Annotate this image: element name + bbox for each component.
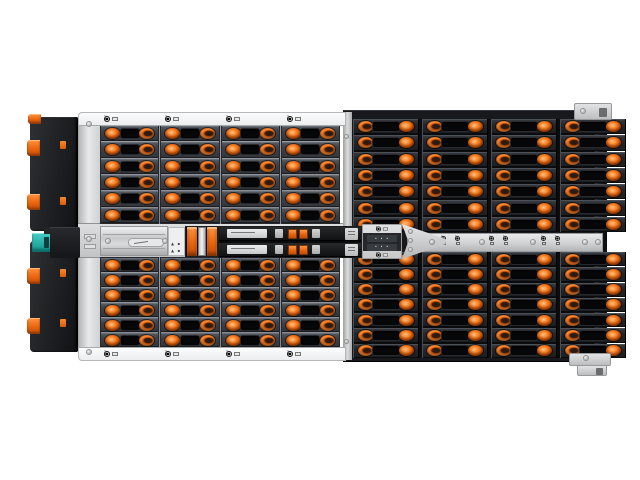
drive-bay	[161, 159, 218, 174]
drive-latch-crescent-icon	[139, 305, 154, 316]
drive-latch-oval-icon	[606, 137, 621, 148]
bracket-slot	[596, 368, 603, 375]
drive-bay	[101, 303, 158, 317]
drive-latch-crescent-icon	[358, 299, 373, 310]
drive-bay	[101, 159, 158, 174]
drive-slot-vent	[442, 122, 468, 131]
drive-bay	[423, 119, 487, 134]
drive-slot-vent	[511, 171, 537, 180]
drive-bay	[282, 208, 339, 223]
drive-bay	[222, 333, 279, 347]
cma-slide-rail	[100, 226, 168, 256]
drive-latch-crescent-icon	[565, 121, 580, 132]
drive-slot-vent	[121, 194, 139, 203]
info-letter-icon: i	[376, 252, 378, 258]
drive-bay	[354, 283, 418, 297]
drive-latch-crescent-icon	[200, 275, 215, 286]
drive-latch-crescent-icon	[260, 320, 275, 331]
drive-bay	[492, 119, 556, 134]
drive-latch-crescent-icon	[358, 330, 373, 341]
drive-latch-crescent-icon	[358, 284, 373, 295]
sled-block	[312, 229, 320, 238]
drive-bay	[492, 298, 556, 312]
drive-latch-oval-icon	[468, 330, 483, 341]
drive-latch-oval-icon	[165, 161, 180, 172]
drive-bay	[423, 283, 487, 297]
drive-latch-oval-icon	[105, 210, 120, 221]
drive-latch-oval-icon	[468, 345, 483, 356]
drive-column	[161, 258, 218, 347]
drive-latch-crescent-icon	[565, 137, 580, 148]
drive-bay	[354, 298, 418, 312]
drive-bay	[492, 135, 556, 150]
drive-latch-crescent-icon	[427, 186, 442, 197]
drive-bay	[222, 208, 279, 223]
drive-latch-oval-icon	[226, 260, 241, 271]
drive-bay	[492, 344, 556, 358]
drive-bay	[423, 200, 487, 215]
drive-latch-oval-icon	[537, 137, 552, 148]
drive-latch-crescent-icon	[565, 254, 580, 265]
center-rail	[420, 233, 603, 252]
rail-screw	[583, 240, 587, 244]
drive-slot-vent	[241, 336, 259, 345]
drive-latch-crescent-icon	[565, 330, 580, 341]
drive-latch-crescent-icon	[427, 219, 442, 230]
drive-latch-crescent-icon	[496, 315, 511, 326]
drive-latch-oval-icon	[165, 128, 180, 139]
drive-slot-vent	[580, 187, 606, 196]
drive-bay	[423, 152, 487, 167]
drive-latch-crescent-icon	[496, 299, 511, 310]
drive-latch-oval-icon	[606, 170, 621, 181]
chassis-screw	[87, 237, 91, 241]
drive-bay	[222, 159, 279, 174]
drive-slot-vent	[121, 336, 139, 345]
sled-orange-clip-icon	[288, 229, 297, 239]
orange-release-latch	[185, 226, 218, 257]
drive-latch-oval-icon	[165, 305, 180, 316]
drive-latch-oval-icon	[399, 154, 414, 165]
drive-slot-vent	[241, 145, 259, 154]
drive-square-icon	[504, 242, 508, 245]
fan-latch-mark-icon	[60, 319, 66, 327]
drive-latch-oval-icon	[468, 219, 483, 230]
drive-slot-vent	[511, 300, 537, 309]
drive-latch-oval-icon	[105, 305, 120, 316]
drive-latch-oval-icon	[537, 345, 552, 356]
drive-latch-oval-icon	[468, 154, 483, 165]
drive-slot-vent	[241, 194, 259, 203]
drive-latch-crescent-icon	[496, 219, 511, 230]
chassis-screw	[87, 350, 91, 354]
rail-icon-top: i	[503, 236, 508, 241]
info-letter-icon: i	[455, 236, 457, 242]
drive-latch-oval-icon	[537, 284, 552, 295]
drive-latch-oval-icon	[537, 186, 552, 197]
drive-latch-oval-icon	[165, 193, 180, 204]
drive-bay	[101, 208, 158, 223]
fan-latch-mark-icon	[60, 269, 66, 277]
drive-latch-crescent-icon	[320, 177, 335, 188]
rack-bracket-bottom-right-foot	[577, 365, 607, 376]
rail-port-icon: i	[541, 236, 546, 245]
warning-triangle-icon: ▲ ▪	[171, 242, 181, 246]
drive-slot-vent	[580, 285, 606, 294]
drive-slot-vent	[580, 204, 606, 213]
drive-latch-crescent-icon	[496, 284, 511, 295]
drive-latch-oval-icon	[165, 275, 180, 286]
drive-slot-vent	[442, 316, 468, 325]
drive-latch-oval-icon	[606, 284, 621, 295]
drive-slot-vent	[511, 204, 537, 213]
drive-bay	[423, 344, 487, 358]
drive-bay	[161, 126, 218, 141]
drive-slot-vent	[241, 291, 259, 300]
info-letter-icon: i	[165, 351, 167, 358]
latch-bar	[207, 227, 217, 256]
drive-latch-oval-icon	[606, 186, 621, 197]
drive-slot-vent	[373, 331, 399, 340]
rail-icon-top: i	[541, 236, 546, 241]
drive-latch-crescent-icon	[260, 177, 275, 188]
drive-bay	[492, 267, 556, 281]
drive-slot-vent	[580, 171, 606, 180]
drive-slot-vent	[373, 285, 399, 294]
drive-latch-crescent-icon	[427, 170, 442, 181]
micro-label: • • •	[375, 245, 390, 249]
drive-latch-crescent-icon	[139, 161, 154, 172]
drive-latch-oval-icon	[399, 186, 414, 197]
drive-latch-oval-icon	[226, 161, 241, 172]
drive-slot-vent	[373, 316, 399, 325]
drive-latch-crescent-icon	[427, 284, 442, 295]
drive-slot-vent	[442, 155, 468, 164]
drive-latch-crescent-icon	[565, 186, 580, 197]
drive-slot-vent	[373, 346, 399, 355]
drive-latch-oval-icon	[468, 137, 483, 148]
drive-slot-vent	[580, 255, 606, 264]
drive-bay	[423, 168, 487, 183]
module-label	[84, 244, 96, 249]
drive-grid-bottom-right	[354, 252, 594, 358]
drive-latch-oval-icon	[105, 193, 120, 204]
endcap-port-icon: i	[376, 252, 388, 259]
drive-slot-vent	[241, 321, 259, 330]
drive-latch-crescent-icon	[496, 186, 511, 197]
endcap-port-area: • • •• • •	[363, 233, 401, 251]
fan-latch-mark-icon	[60, 141, 66, 149]
drive-latch-oval-icon	[105, 128, 120, 139]
drive-latch-crescent-icon	[200, 177, 215, 188]
drive-slot-vent	[301, 291, 319, 300]
drive-bay	[282, 191, 339, 206]
drive-latch-oval-icon	[226, 335, 241, 346]
drive-latch-crescent-icon	[260, 260, 275, 271]
drive-bay	[492, 168, 556, 183]
strip-port-icon: i	[226, 115, 240, 123]
drive-latch-oval-icon	[537, 203, 552, 214]
endcap-top-bar: i	[363, 225, 401, 233]
rail-port-icon: i	[455, 236, 460, 245]
drive-latch-crescent-icon	[200, 290, 215, 301]
drive-bay	[561, 184, 625, 199]
drive-bay	[561, 152, 625, 167]
drive-bay	[561, 283, 625, 297]
drive-bay	[423, 267, 487, 281]
drive-bay	[492, 252, 556, 266]
drive-slot-vent	[373, 187, 399, 196]
drive-slot-vent	[373, 270, 399, 279]
drive-bay	[101, 288, 158, 302]
drive-latch-oval-icon	[399, 269, 414, 280]
sled-orange-clip-icon	[288, 245, 297, 255]
drive-latch-crescent-icon	[260, 128, 275, 139]
drive-slot-vent	[241, 178, 259, 187]
screw	[584, 356, 588, 360]
drive-slot-vent	[181, 162, 199, 171]
drive-bay	[222, 288, 279, 302]
drive-latch-crescent-icon	[565, 315, 580, 326]
info-letter-icon: i	[376, 226, 378, 232]
drive-slot-vent	[301, 306, 319, 315]
drive-latch-crescent-icon	[565, 284, 580, 295]
rail-port-icon: i	[555, 236, 560, 245]
drive-square-icon	[490, 242, 494, 245]
drive-column	[222, 126, 279, 223]
drive-slot-vent	[241, 261, 259, 270]
info-letter-icon: i	[541, 236, 543, 242]
drive-latch-crescent-icon	[260, 305, 275, 316]
bracket-slot	[599, 108, 607, 117]
info-letter-icon: i	[503, 236, 505, 242]
drive-latch-oval-icon	[399, 345, 414, 356]
drive-latch-oval-icon	[606, 154, 621, 165]
drive-latch-oval-icon	[105, 161, 120, 172]
drive-slot-vent	[511, 138, 537, 147]
sled-end-label	[345, 228, 358, 240]
drive-latch-crescent-icon	[200, 144, 215, 155]
drive-slot-vent	[511, 270, 537, 279]
drive-slot-vent	[301, 145, 319, 154]
drive-bay	[161, 273, 218, 287]
drive-latch-oval-icon	[286, 177, 301, 188]
drive-latch-oval-icon	[537, 154, 552, 165]
fan-latch-tab-icon	[27, 268, 40, 284]
drive-latch-oval-icon	[399, 121, 414, 132]
drive-latch-crescent-icon	[260, 144, 275, 155]
drive-latch-crescent-icon	[320, 193, 335, 204]
chassis-screw	[345, 135, 348, 138]
drive-latch-crescent-icon	[427, 315, 442, 326]
drive-bay	[101, 258, 158, 272]
drive-latch-oval-icon	[226, 290, 241, 301]
drive-latch-oval-icon	[468, 203, 483, 214]
drive-bay	[561, 200, 625, 215]
latch-handle	[198, 227, 206, 256]
drive-slot-vent	[511, 316, 537, 325]
drive-slot-vent	[580, 316, 606, 325]
drive-bay	[101, 333, 158, 347]
drive-slot-vent	[181, 211, 199, 220]
drive-slot-vent	[580, 155, 606, 164]
drive-slot-vent	[301, 261, 319, 270]
drive-bay	[354, 267, 418, 281]
chassis-screw	[87, 122, 91, 126]
drive-latch-crescent-icon	[358, 269, 373, 280]
drive-latch-crescent-icon	[427, 299, 442, 310]
drive-bay	[101, 273, 158, 287]
sled-orange-clip-icon	[299, 245, 308, 255]
drive-rect-icon	[173, 352, 179, 356]
drive-bay	[423, 135, 487, 150]
drive-bay	[423, 217, 487, 232]
drive-slot-vent	[511, 187, 537, 196]
drive-bay	[101, 175, 158, 190]
drive-grid-top-right	[354, 119, 594, 232]
drive-bay	[492, 328, 556, 342]
drive-slot-vent	[580, 220, 606, 229]
drive-bay	[222, 191, 279, 206]
drive-latch-crescent-icon	[139, 210, 154, 221]
drive-bay	[561, 252, 625, 266]
sled-block	[275, 245, 283, 254]
drive-bay	[423, 252, 487, 266]
rail-screw	[480, 240, 484, 244]
drive-latch-crescent-icon	[427, 345, 442, 356]
drive-latch-oval-icon	[399, 203, 414, 214]
drive-slot-vent	[511, 346, 537, 355]
drive-slot-vent	[580, 300, 606, 309]
drive-latch-crescent-icon	[565, 154, 580, 165]
drive-column	[101, 126, 158, 223]
drive-column	[161, 126, 218, 223]
drive-latch-oval-icon	[286, 161, 301, 172]
drive-latch-oval-icon	[537, 219, 552, 230]
drive-square-icon	[556, 242, 560, 245]
drive-latch-crescent-icon	[358, 186, 373, 197]
drive-latch-crescent-icon	[358, 137, 373, 148]
sled-end-label	[345, 244, 358, 256]
drive-latch-crescent-icon	[139, 177, 154, 188]
drive-latch-crescent-icon	[496, 121, 511, 132]
drive-bay	[561, 267, 625, 281]
drive-bay	[561, 328, 625, 342]
drive-bay	[354, 184, 418, 199]
drive-grid-top-left	[101, 126, 339, 223]
drive-slot-vent	[301, 336, 319, 345]
drive-rect-icon	[383, 253, 388, 256]
drive-slot-vent	[373, 204, 399, 213]
drive-slot-vent	[442, 220, 468, 229]
drive-slot-vent	[511, 255, 537, 264]
drive-bay	[222, 303, 279, 317]
sled-label	[227, 245, 267, 254]
drive-latch-oval-icon	[537, 299, 552, 310]
drive-latch-oval-icon	[105, 275, 120, 286]
drive-latch-crescent-icon	[427, 121, 442, 132]
fan-latch-tab-icon	[27, 140, 40, 156]
drive-latch-crescent-icon	[200, 320, 215, 331]
drive-latch-oval-icon	[606, 269, 621, 280]
endcap-bottom-bar: i	[363, 251, 401, 259]
drive-latch-oval-icon	[399, 137, 414, 148]
chassis-screw	[106, 239, 110, 243]
drive-latch-oval-icon	[165, 320, 180, 331]
drive-latch-crescent-icon	[200, 305, 215, 316]
info-letter-icon: i	[104, 351, 106, 358]
rail-port-icon: i	[489, 236, 494, 245]
drive-bay	[561, 119, 625, 134]
drive-bay	[101, 191, 158, 206]
drive-latch-oval-icon	[606, 121, 621, 132]
drive-bay	[161, 191, 218, 206]
drive-bay	[354, 200, 418, 215]
drive-slot-vent	[373, 122, 399, 131]
drive-latch-oval-icon	[165, 335, 180, 346]
drive-latch-crescent-icon	[427, 254, 442, 265]
drive-latch-crescent-icon	[496, 330, 511, 341]
drive-slot-vent	[241, 211, 259, 220]
drive-bay	[222, 126, 279, 141]
sled-orange-clip-icon	[299, 229, 308, 239]
drive-slot-vent	[301, 178, 319, 187]
drive-bay	[561, 135, 625, 150]
rail-screw	[531, 240, 535, 244]
drive-slot-vent	[373, 300, 399, 309]
drive-column	[561, 119, 625, 232]
drive-latch-crescent-icon	[427, 203, 442, 214]
drive-latch-oval-icon	[226, 144, 241, 155]
warning-label: ▲ ▪ ▲ ▪	[168, 227, 185, 256]
drive-latch-crescent-icon	[200, 161, 215, 172]
drive-bay	[161, 318, 218, 332]
chassis-screw	[163, 239, 167, 243]
drive-slot-vent	[121, 261, 139, 270]
drive-latch-crescent-icon	[320, 320, 335, 331]
drive-latch-oval-icon	[105, 260, 120, 271]
drive-bay	[561, 217, 625, 232]
drive-bay	[161, 142, 218, 157]
drive-latch-crescent-icon	[496, 170, 511, 181]
drive-column	[423, 119, 487, 232]
drive-slot-vent	[511, 285, 537, 294]
drive-slot-vent	[241, 129, 259, 138]
drive-bay	[561, 298, 625, 312]
drive-bay	[222, 318, 279, 332]
drive-bay	[282, 142, 339, 157]
drive-slot-vent	[181, 145, 199, 154]
endcap-port-icon: i	[376, 226, 388, 233]
drive-latch-crescent-icon	[358, 170, 373, 181]
drive-slot-vent	[442, 204, 468, 213]
drive-slot-vent	[181, 276, 199, 285]
drive-bay	[282, 318, 339, 332]
drive-latch-crescent-icon	[139, 144, 154, 155]
drive-slot-vent	[511, 331, 537, 340]
drive-latch-oval-icon	[286, 305, 301, 316]
drive-latch-oval-icon	[399, 284, 414, 295]
drive-slot-vent	[511, 220, 537, 229]
drive-bay	[161, 303, 218, 317]
drive-bay	[282, 273, 339, 287]
drive-latch-oval-icon	[468, 254, 483, 265]
drive-latch-crescent-icon	[358, 154, 373, 165]
drive-slot-vent	[301, 276, 319, 285]
drive-latch-crescent-icon	[496, 254, 511, 265]
drive-latch-oval-icon	[286, 128, 301, 139]
drive-latch-crescent-icon	[320, 144, 335, 155]
